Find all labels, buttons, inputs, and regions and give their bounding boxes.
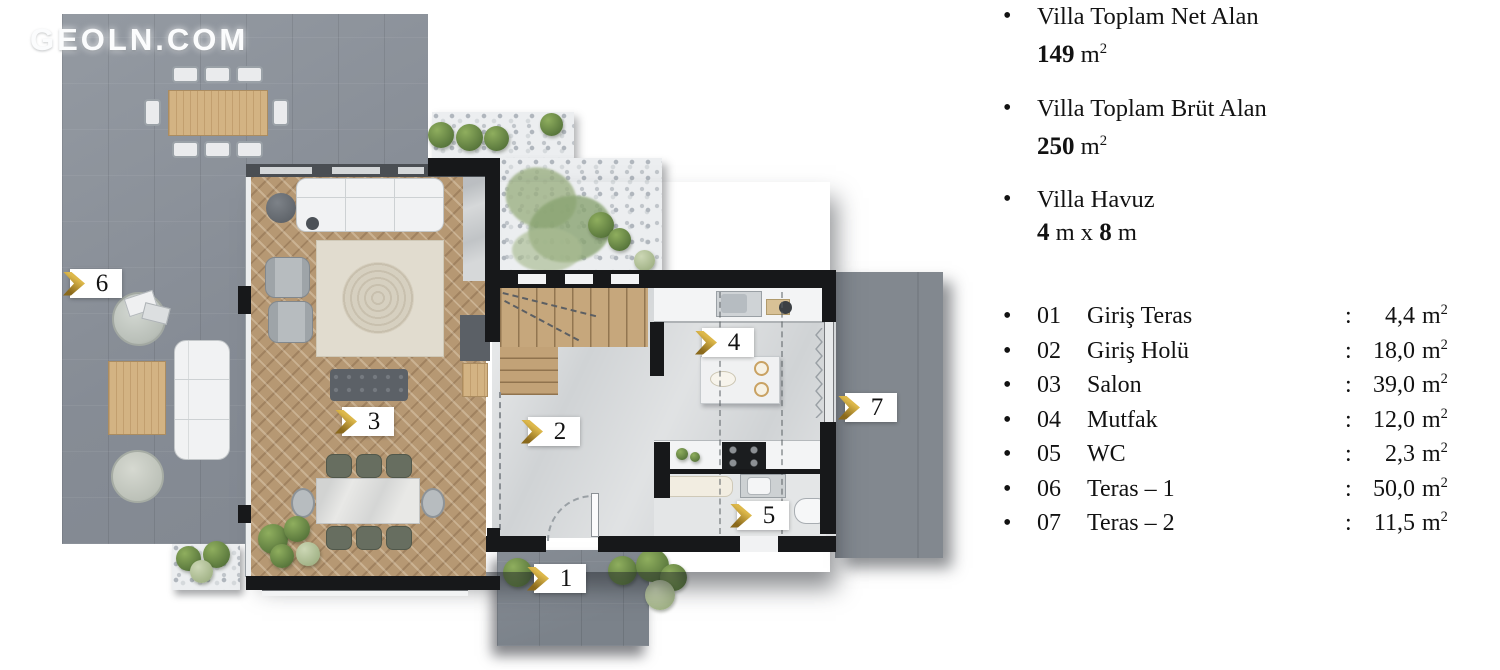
door-leaf (591, 493, 599, 537)
summary-label: Villa Toplam Brüt Alan (1037, 92, 1267, 125)
room-number: 07 (1037, 510, 1087, 537)
colon: : (1345, 338, 1361, 365)
potted-plant (690, 452, 700, 462)
room-number: 01 (1037, 303, 1087, 330)
wall (246, 576, 500, 590)
unit: m2 (1081, 133, 1107, 160)
end-chair (291, 488, 315, 518)
curtain-zigzag-icon (814, 328, 824, 418)
room-marker-4: 4 (702, 328, 754, 357)
sliding-door (824, 322, 834, 422)
unit: m2 (1081, 41, 1107, 68)
wc-sink (747, 477, 771, 495)
unit: m2 (1415, 509, 1468, 537)
summary-number: 8 (1099, 219, 1112, 246)
room-marker-number: 6 (85, 269, 122, 298)
room-area: 50,0 (1361, 476, 1415, 503)
plate (754, 361, 769, 376)
summary-item-pool: • Villa Havuz 4 m x 8 m (990, 183, 1155, 249)
room-area: 39,0 (1361, 372, 1415, 399)
room-marker-3: 3 (342, 407, 394, 436)
wall (486, 536, 546, 552)
terrace-chair (236, 66, 263, 83)
room-row: • 04 Mutfak : 12,0 m2 (990, 404, 1468, 439)
window (398, 167, 424, 174)
cooktop (722, 442, 766, 470)
room-row: • 06 Teras – 1 : 50,0 m2 (990, 473, 1468, 508)
terrace-dining-table (168, 90, 268, 136)
window (611, 274, 639, 284)
terrace-chair (204, 141, 231, 158)
terrace-sofa (174, 340, 230, 460)
indoor-plant (296, 542, 320, 566)
end-chair (421, 488, 445, 518)
room-marker-5: 5 (737, 501, 789, 530)
window (332, 167, 380, 174)
bullet-icon: • (990, 404, 1037, 437)
bullet-icon: • (990, 300, 1037, 333)
room-name: Mutfak (1087, 407, 1345, 434)
room-marker-2: 2 (528, 417, 580, 446)
room-name: Teras – 1 (1087, 476, 1345, 503)
stone-column (463, 177, 485, 281)
summary-value: 149 m2 (1037, 33, 1259, 71)
dining-chair (326, 454, 352, 478)
wall-stub (650, 322, 664, 376)
terrace-chair (236, 141, 263, 158)
wall (820, 422, 836, 534)
room-marker-1: 1 (534, 564, 586, 593)
unit: m2 (1415, 337, 1468, 365)
bullet-icon: • (990, 0, 1037, 71)
unit: m2 (1415, 475, 1468, 503)
dining-chair (356, 526, 382, 550)
room-number: 03 (1037, 372, 1087, 399)
room-marker-number: 4 (717, 328, 754, 357)
terrace-chair (272, 99, 289, 126)
bullet-icon: • (990, 438, 1037, 471)
room-name: WC (1087, 441, 1345, 468)
plate (754, 382, 769, 397)
reference-line (781, 292, 783, 534)
bush (428, 122, 454, 148)
summary-item-net-area: • Villa Toplam Net Alan 149 m2 (990, 0, 1259, 71)
wall-stub (238, 505, 251, 523)
unit: m2 (1415, 406, 1468, 434)
dining-chair (386, 454, 412, 478)
bullet-icon: • (990, 507, 1037, 540)
summary-label: Villa Havuz (1037, 183, 1155, 216)
agave-plant (645, 580, 675, 610)
room-name: Giriş Teras (1087, 303, 1345, 330)
colon: : (1345, 407, 1361, 434)
room-row: • 05 WC : 2,3 m2 (990, 438, 1468, 473)
armchair (265, 257, 310, 298)
colon: : (1345, 303, 1361, 330)
room-row: • 02 Giriş Holü : 18,0 m2 (990, 335, 1468, 370)
bullet-icon: • (990, 92, 1037, 163)
terrace-chair (172, 66, 199, 83)
window (518, 274, 546, 284)
room-marker-7: 7 (845, 393, 897, 422)
summary-value: 250 m2 (1037, 125, 1267, 163)
side-table (266, 193, 296, 223)
bush (456, 124, 483, 151)
summary-number: 149 (1037, 41, 1075, 68)
terrace-coffee-table (108, 361, 166, 435)
colon: : (1345, 476, 1361, 503)
potted-plant (676, 448, 688, 460)
room-marker-number: 3 (357, 407, 394, 436)
bullet-icon: • (990, 335, 1037, 368)
window (260, 167, 312, 174)
room-area: 4,4 (1361, 303, 1415, 330)
room-number: 02 (1037, 338, 1087, 365)
room-name: Teras – 2 (1087, 510, 1345, 537)
info-panel: • Villa Toplam Net Alan 149 m2 • Villa T… (990, 0, 1480, 670)
wall (598, 536, 740, 552)
colon: : (1345, 372, 1361, 399)
summary-text-tail: m (1112, 219, 1137, 246)
salon-dining-table (316, 478, 420, 524)
window (565, 274, 593, 284)
bush (190, 560, 213, 583)
dining-chair (326, 526, 352, 550)
dining-chair (356, 454, 382, 478)
summary-text: Villa Toplam Net Alan 149 m2 (1037, 0, 1259, 71)
room-marker-number: 1 (549, 564, 586, 593)
tufted-bench (330, 369, 408, 401)
colon: : (1345, 510, 1361, 537)
armchair (268, 301, 313, 343)
room-area: 11,5 (1361, 510, 1415, 537)
room-marker-number: 5 (752, 501, 789, 530)
unit: m2 (1415, 440, 1468, 468)
room-area: 2,3 (1361, 441, 1415, 468)
wall (778, 536, 836, 552)
indoor-plant (270, 544, 294, 568)
room-list: • 01 Giriş Teras : 4,4 m2 • 02 Giriş Hol… (990, 300, 1468, 542)
staircase-winders (500, 347, 558, 395)
wall (822, 272, 836, 322)
round-carpet (342, 262, 414, 334)
room-area: 12,0 (1361, 407, 1415, 434)
room-number: 06 (1037, 476, 1087, 503)
side-cabinet (462, 363, 488, 397)
kitchen-sink-basin (721, 294, 747, 313)
summary-text: Villa Toplam Brüt Alan 250 m2 (1037, 92, 1267, 163)
bullet-icon: • (990, 369, 1037, 402)
room-row: • 01 Giriş Teras : 4,4 m2 (990, 300, 1468, 335)
bush (540, 113, 563, 136)
salon-opening-line (499, 392, 501, 530)
colon: : (1345, 441, 1361, 468)
summary-number: 250 (1037, 133, 1075, 160)
summary-label: Villa Toplam Net Alan (1037, 0, 1259, 33)
bush (484, 126, 509, 151)
summary-text: Villa Havuz 4 m x 8 m (1037, 183, 1155, 249)
wall (498, 270, 836, 288)
room-marker-6: 6 (70, 269, 122, 298)
wall (485, 158, 500, 342)
wall-stub (238, 286, 251, 314)
dining-chair (386, 526, 412, 550)
room-row: • 07 Teras – 2 : 11,5 m2 (990, 507, 1468, 542)
summary-text-mid: m x (1050, 219, 1100, 246)
floor-lamp (306, 217, 319, 230)
bullet-icon: • (990, 183, 1037, 249)
room-marker-number: 7 (860, 393, 897, 422)
room-row: • 03 Salon : 39,0 m2 (990, 369, 1468, 404)
bullet-icon: • (990, 473, 1037, 506)
summary-number: 4 (1037, 219, 1050, 246)
watermark: GEOLN.COM (30, 22, 248, 58)
unit: m2 (1415, 371, 1468, 399)
room-area: 18,0 (1361, 338, 1415, 365)
terrace-chair (172, 141, 199, 158)
indoor-plant (284, 516, 310, 542)
floor-plan-page: 1 2 3 4 5 6 7 GEOLN.COM • Villa Toplam N… (0, 0, 1500, 670)
terrace-pouf (111, 450, 164, 503)
door-gap (740, 536, 778, 552)
terrace-chair (204, 66, 231, 83)
room-number: 04 (1037, 407, 1087, 434)
room-marker-number: 2 (543, 417, 580, 446)
room-number: 05 (1037, 441, 1087, 468)
unit: m2 (1415, 302, 1468, 330)
terrace-chair (144, 99, 161, 126)
summary-item-gross-area: • Villa Toplam Brüt Alan 250 m2 (990, 92, 1267, 163)
window-band (262, 590, 468, 596)
summary-value: 4 m x 8 m (1037, 216, 1155, 249)
room-name: Giriş Holü (1087, 338, 1345, 365)
wall (654, 469, 826, 474)
room-name: Salon (1087, 372, 1345, 399)
serving-plate (710, 371, 736, 387)
